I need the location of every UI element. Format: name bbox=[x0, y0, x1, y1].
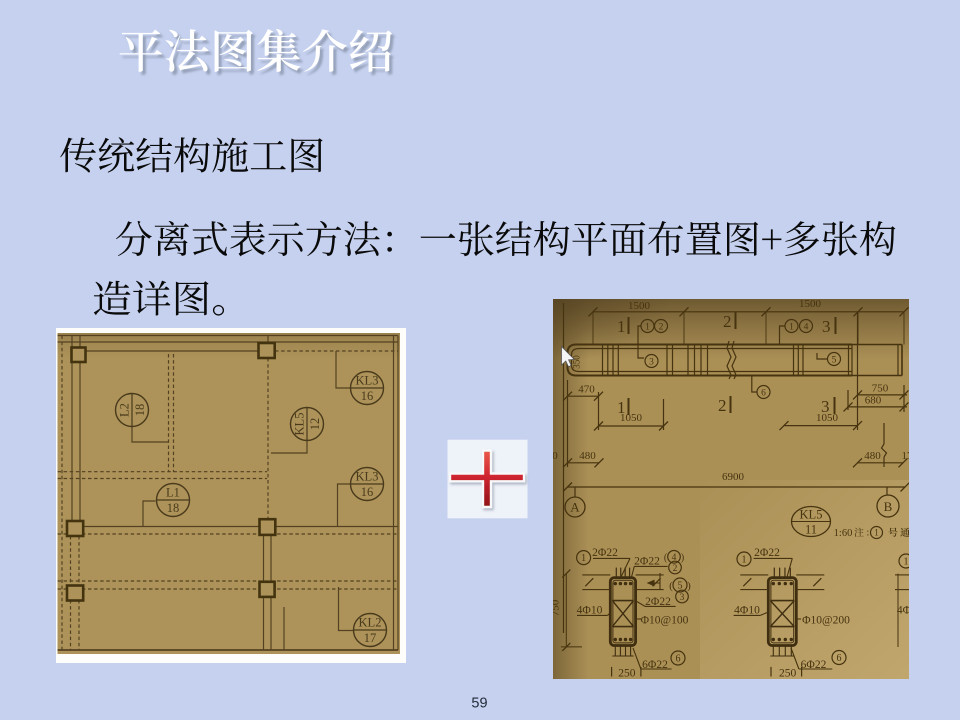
svg-text:KL5: KL5 bbox=[293, 413, 307, 436]
svg-text:): ) bbox=[687, 580, 691, 592]
svg-text:17: 17 bbox=[902, 450, 914, 462]
svg-text:2Φ22: 2Φ22 bbox=[634, 556, 660, 568]
svg-text:750: 750 bbox=[550, 599, 562, 616]
svg-text:KL3: KL3 bbox=[356, 470, 379, 484]
svg-text:B: B bbox=[884, 499, 893, 514]
svg-text:4Φ10: 4Φ10 bbox=[577, 605, 603, 617]
svg-text:6900: 6900 bbox=[722, 471, 745, 483]
svg-text:2: 2 bbox=[718, 396, 727, 415]
svg-text:Φ10@200: Φ10@200 bbox=[802, 615, 850, 627]
svg-text:2: 2 bbox=[659, 322, 664, 332]
svg-text:480: 480 bbox=[864, 450, 881, 462]
svg-text:16: 16 bbox=[361, 389, 374, 403]
svg-text:250: 250 bbox=[779, 668, 797, 680]
svg-text:1: 1 bbox=[617, 398, 626, 417]
svg-text:16: 16 bbox=[361, 485, 374, 499]
svg-text:Φ10@100: Φ10@100 bbox=[641, 615, 689, 627]
svg-text:L1: L1 bbox=[166, 486, 180, 500]
svg-text:3: 3 bbox=[822, 317, 831, 336]
svg-text:1: 1 bbox=[581, 553, 586, 564]
svg-text:4: 4 bbox=[804, 322, 809, 332]
svg-text:3: 3 bbox=[649, 357, 654, 367]
svg-text:KL3: KL3 bbox=[356, 374, 379, 388]
svg-text:3: 3 bbox=[680, 593, 685, 603]
svg-text:5: 5 bbox=[832, 355, 837, 365]
svg-text:2: 2 bbox=[673, 564, 678, 574]
svg-text:12: 12 bbox=[308, 418, 322, 431]
svg-text:250: 250 bbox=[618, 668, 636, 680]
svg-text:350: 350 bbox=[572, 355, 582, 369]
svg-text:680: 680 bbox=[865, 395, 882, 407]
svg-text:59: 59 bbox=[471, 696, 487, 712]
svg-text:KL2: KL2 bbox=[359, 616, 382, 630]
svg-text:11: 11 bbox=[805, 523, 817, 537]
svg-text:4Φ10: 4Φ10 bbox=[734, 605, 760, 617]
svg-text:): ) bbox=[681, 553, 684, 564]
svg-text:0: 0 bbox=[552, 450, 558, 462]
svg-text:2Φ22: 2Φ22 bbox=[592, 547, 618, 559]
svg-text:(: ( bbox=[669, 580, 673, 592]
svg-text:470: 470 bbox=[578, 384, 595, 396]
svg-text:18: 18 bbox=[167, 501, 180, 515]
svg-text:6: 6 bbox=[837, 653, 842, 664]
svg-text:1: 1 bbox=[789, 322, 794, 332]
svg-text:1:60: 1:60 bbox=[834, 528, 853, 539]
svg-text:1: 1 bbox=[874, 528, 879, 538]
svg-text:1500: 1500 bbox=[628, 300, 651, 312]
svg-text:1: 1 bbox=[617, 317, 626, 336]
svg-text:KL5: KL5 bbox=[800, 508, 823, 522]
svg-text:1500: 1500 bbox=[799, 298, 822, 310]
svg-text:2: 2 bbox=[723, 312, 732, 331]
svg-text::: : bbox=[867, 528, 870, 539]
svg-text:1: 1 bbox=[904, 557, 909, 568]
svg-text:1: 1 bbox=[742, 555, 747, 566]
svg-text:17: 17 bbox=[364, 631, 377, 645]
svg-text:A: A bbox=[570, 500, 580, 515]
svg-text:750: 750 bbox=[872, 383, 889, 395]
svg-text:18: 18 bbox=[133, 404, 147, 417]
svg-text:3: 3 bbox=[821, 397, 830, 416]
svg-text:2Φ22: 2Φ22 bbox=[754, 547, 780, 559]
svg-text:L2: L2 bbox=[118, 403, 132, 417]
svg-text:4Φ: 4Φ bbox=[897, 605, 912, 617]
svg-text:1: 1 bbox=[645, 322, 650, 332]
svg-text:480: 480 bbox=[579, 450, 596, 462]
svg-text:6: 6 bbox=[761, 388, 766, 398]
svg-text:6: 6 bbox=[676, 654, 681, 665]
